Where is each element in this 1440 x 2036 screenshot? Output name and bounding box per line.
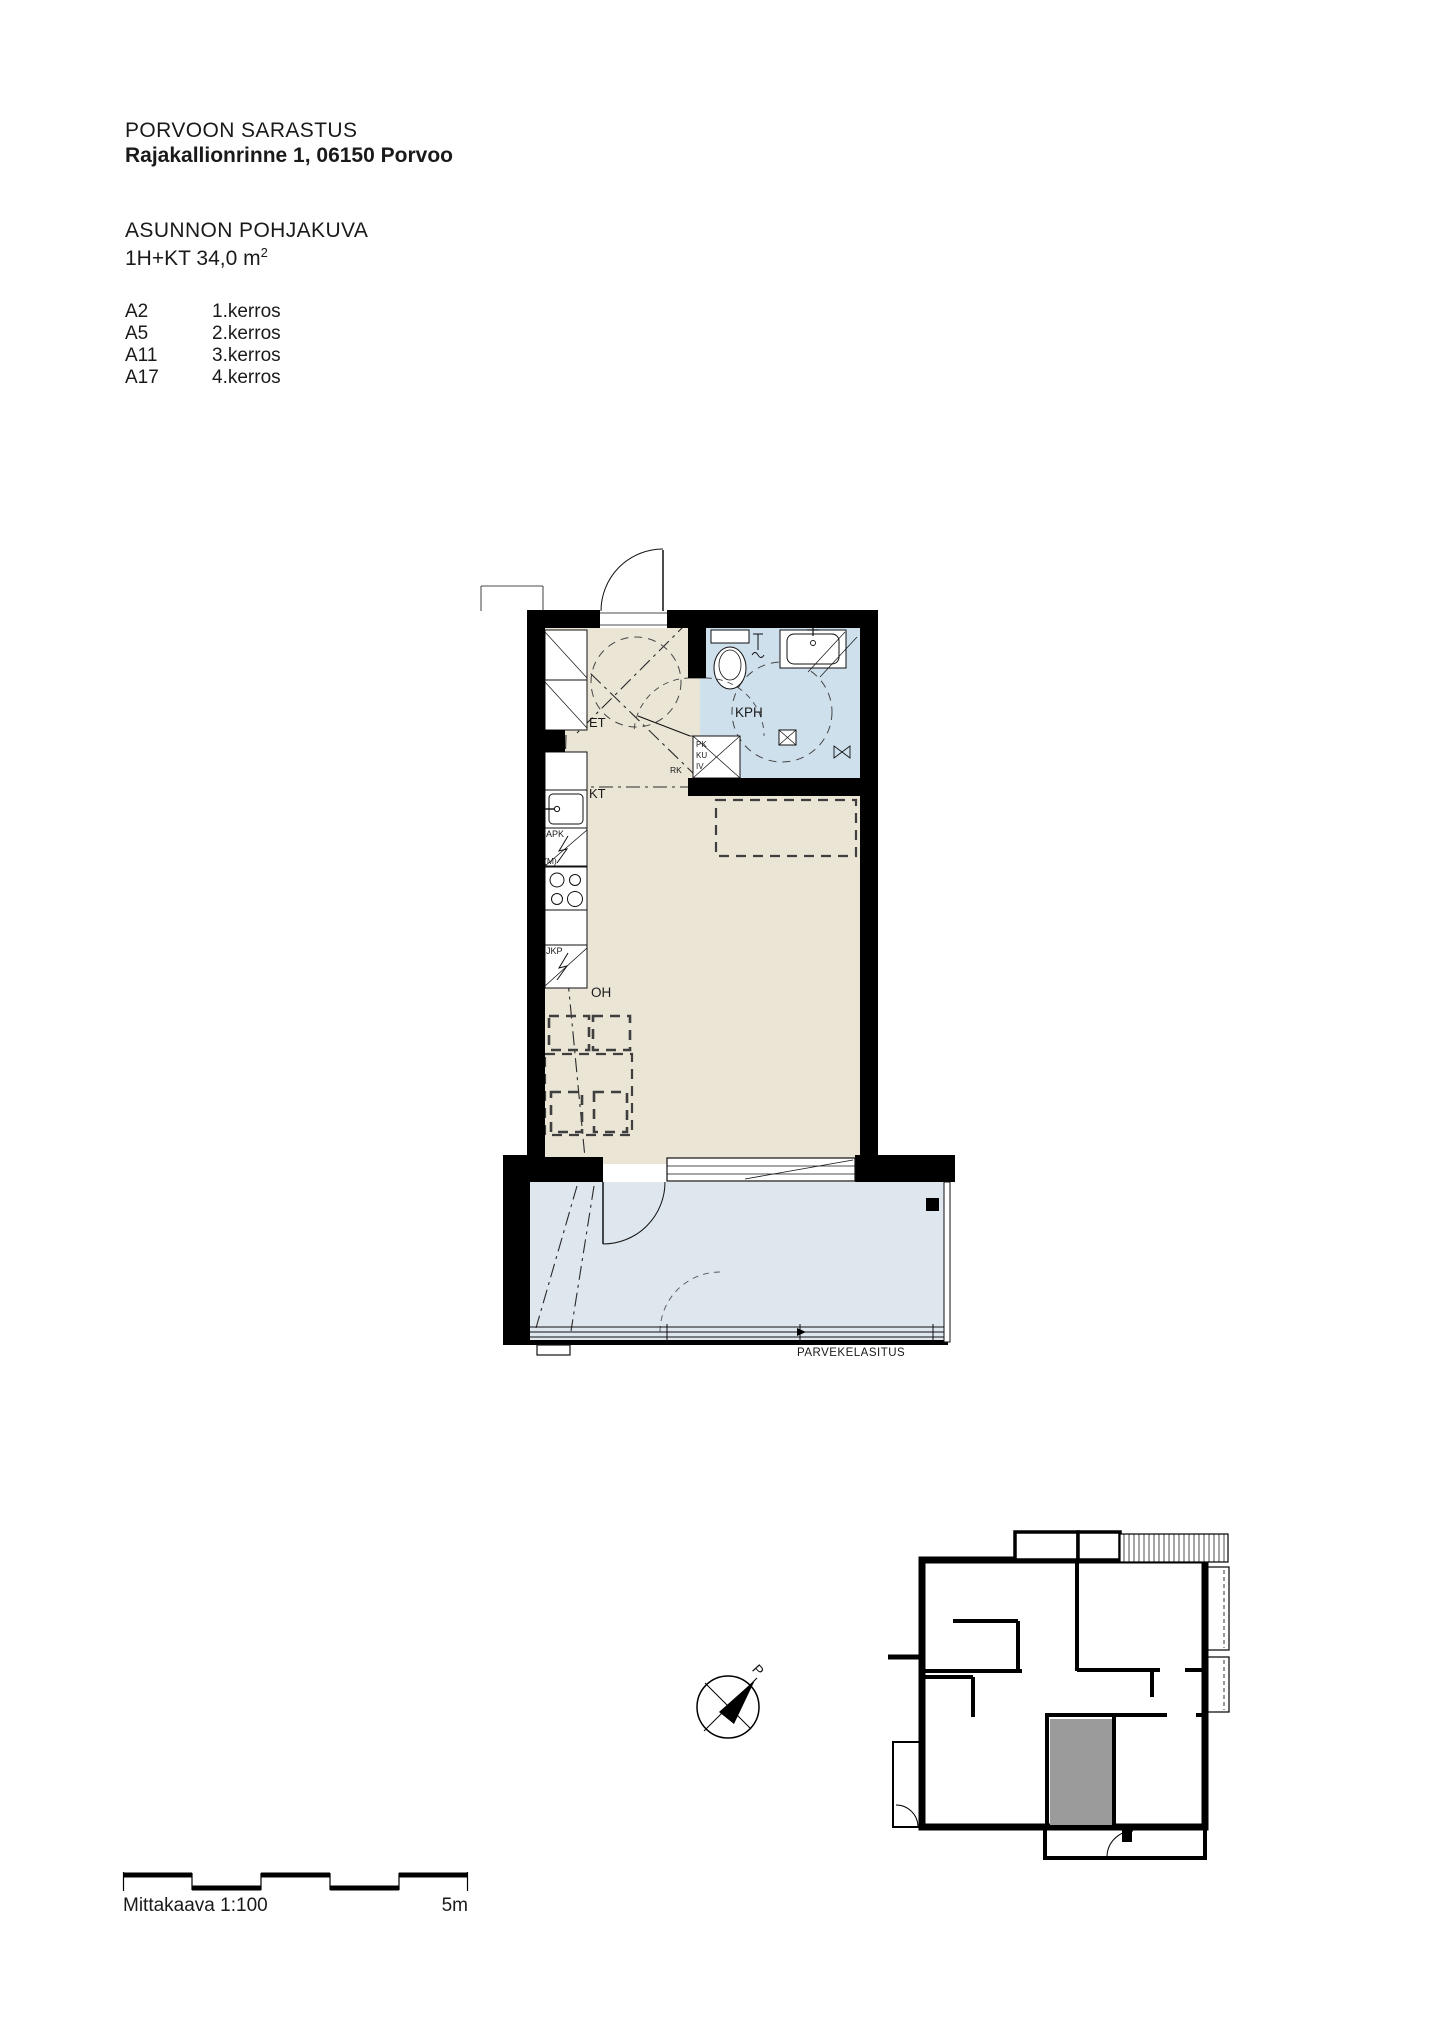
compass-north-label: P (749, 1661, 767, 1679)
stairwell-hatch (1120, 1534, 1228, 1562)
appliance-label-microwave: (M) (544, 856, 557, 866)
kitchen-run (545, 630, 587, 988)
floor-plan-drawing: APK (M) JKP (0, 0, 1440, 2036)
key-plan-balconies (1205, 1567, 1229, 1712)
scale-bar: Mittakaava 1:100 5m (123, 1872, 468, 1916)
room-label-living: OH (591, 985, 611, 1000)
highlighted-unit (1050, 1719, 1112, 1825)
room-label-bathroom: KPH (735, 705, 763, 720)
floor-plan-page: PORVOON SARASTUS Rajakallionrinne 1, 061… (0, 0, 1440, 2036)
appliance-label-fridge: JKP (546, 946, 563, 956)
balcony-glazing-label: PARVEKELASITUS (797, 1347, 905, 1359)
washer-label-2: KU (696, 751, 707, 760)
apartment-plan: APK (M) JKP (481, 549, 955, 1359)
room-label-kitchen: KT (589, 786, 606, 801)
balcony-floor (530, 1182, 948, 1340)
compass-north-icon: P (697, 1661, 767, 1738)
washer-label-3: IV (696, 762, 704, 771)
appliance-label-dishwasher: APK (546, 829, 564, 839)
scale-label: Mittakaava 1:100 (123, 1895, 268, 1916)
room-label-entry: ET (589, 715, 606, 730)
key-plan (888, 1532, 1229, 1858)
scale-length-label: 5m (442, 1895, 468, 1916)
washer-label-1: PK (696, 740, 707, 749)
electrical-panel-label: RK (670, 765, 682, 775)
